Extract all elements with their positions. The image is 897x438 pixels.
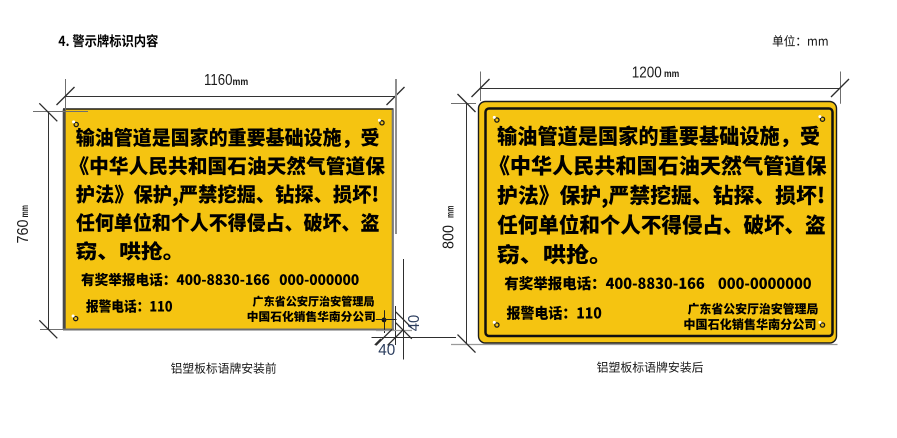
svg-text:40: 40 xyxy=(406,315,423,332)
svg-text:800: 800 xyxy=(441,225,458,249)
svg-text:mm: mm xyxy=(20,205,31,218)
svg-text:mm: mm xyxy=(664,69,679,80)
svg-text:40: 40 xyxy=(378,342,395,359)
svg-text:1200: 1200 xyxy=(632,64,662,81)
svg-text:mm: mm xyxy=(233,77,249,88)
svg-text:760: 760 xyxy=(15,219,32,243)
svg-text:mm: mm xyxy=(445,205,456,218)
svg-text:1160: 1160 xyxy=(204,72,233,89)
